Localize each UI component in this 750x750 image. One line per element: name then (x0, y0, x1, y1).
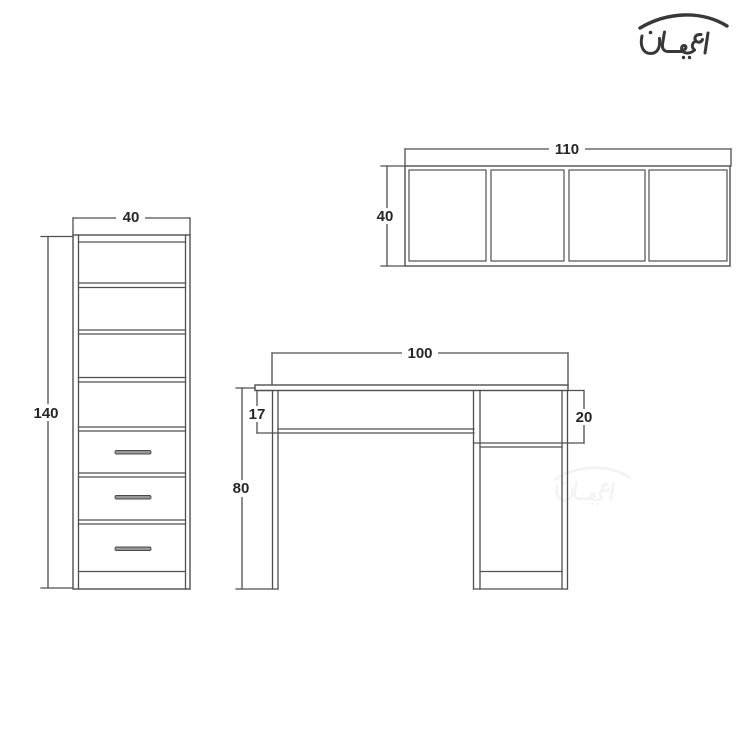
desk-top-panel (255, 385, 568, 391)
shelf-compartment (649, 170, 727, 261)
desk-height-label: 80 (233, 480, 250, 497)
cabinet-width-label: 40 (123, 209, 140, 226)
shelf-compartment (569, 170, 645, 261)
shelf-width-label: 110 (555, 141, 579, 158)
brand-logo: اعيان (640, 15, 727, 59)
desk-view: 100 80 17 20 (226, 345, 598, 589)
drawer-handle (115, 496, 151, 500)
cabinet-height-label: 140 (33, 405, 58, 422)
shelf-height-label: 40 (377, 208, 394, 225)
furniture-dimension-sheet: اعيان (0, 0, 750, 750)
technical-drawing-canvas: اعيان (0, 0, 750, 750)
desk-drawer-label: 20 (576, 409, 593, 426)
watermark-artwork (556, 468, 630, 506)
desk-width-label: 100 (407, 345, 432, 362)
cabinet-view: 140 40 (31, 209, 190, 589)
desk-apron-label: 17 (249, 406, 266, 423)
shelf-compartment (409, 170, 486, 261)
drawer-handle (115, 451, 151, 455)
drawer-handle (115, 547, 151, 551)
wall-shelf-view: 110 40 (371, 140, 731, 266)
shelf-compartment (491, 170, 564, 261)
watermark-logo (556, 468, 630, 506)
